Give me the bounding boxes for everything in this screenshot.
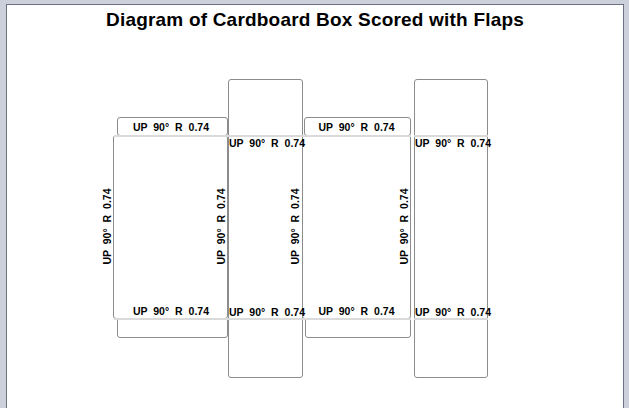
- page-title: Diagram of Cardboard Box Scored with Fla…: [7, 9, 623, 31]
- score-label-vertical-3: UP 90° R 0.74: [289, 185, 302, 269]
- score-label-bottom-panel-2: UP 90° R 0.74: [229, 306, 305, 319]
- panel-1-body: [113, 135, 228, 319]
- score-label-bottom-panel-4: UP 90° R 0.74: [415, 306, 491, 319]
- panel-3-bottom-flap: [305, 318, 411, 338]
- score-label-vertical-2: UP 90° R 0.74: [215, 185, 228, 269]
- score-label-top-panel-1: UP 90° R 0.74: [114, 121, 228, 134]
- score-label-vertical-1: UP 90° R 0.74: [101, 185, 114, 269]
- score-label-bottom-panel-3: UP 90° R 0.74: [302, 305, 411, 318]
- panel-3-body: [302, 135, 411, 319]
- diagram-page: Diagram of Cardboard Box Scored with Fla…: [6, 4, 624, 408]
- panel-4-column: [414, 79, 488, 378]
- score-label-vertical-4: UP 90° R 0.74: [398, 185, 411, 269]
- score-label-top-panel-4: UP 90° R 0.74: [415, 137, 491, 150]
- panel-1-bottom-flap: [117, 318, 228, 338]
- score-label-top-panel-3: UP 90° R 0.74: [302, 121, 411, 134]
- score-label-top-panel-2: UP 90° R 0.74: [229, 137, 305, 150]
- score-label-bottom-panel-1: UP 90° R 0.74: [114, 305, 228, 318]
